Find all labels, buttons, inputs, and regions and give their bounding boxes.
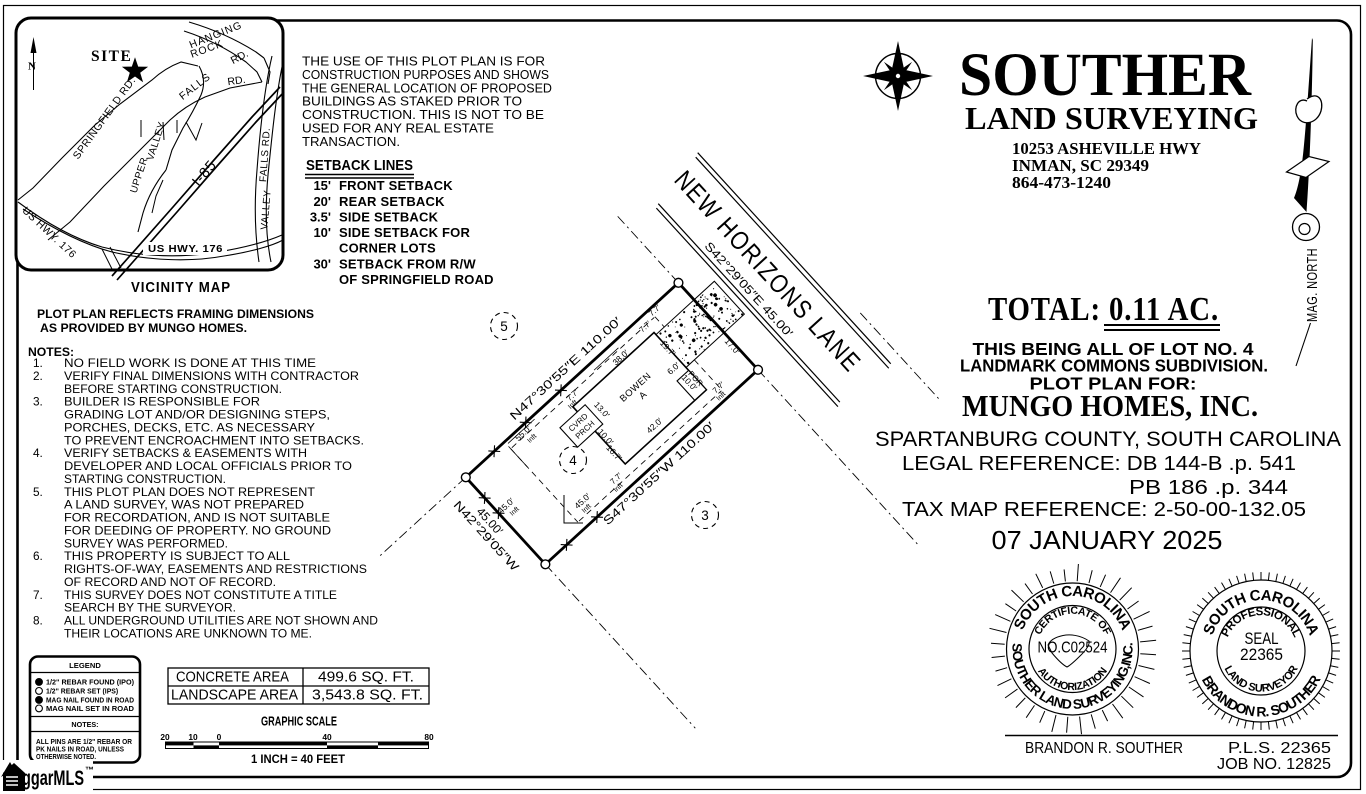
svg-text:JOB NO. 12825: JOB NO. 12825 <box>1217 756 1331 773</box>
svg-text:CORNER LOTS: CORNER LOTS <box>339 241 436 256</box>
svg-text:MAG. NORTH: MAG. NORTH <box>1305 248 1321 322</box>
svg-text:3.5': 3.5' <box>310 210 331 225</box>
svg-text:GRAPHIC SCALE: GRAPHIC SCALE <box>261 715 337 729</box>
svg-text:1/2" REBAR FOUND (IPO): 1/2" REBAR FOUND (IPO) <box>46 680 134 687</box>
svg-text:SIDE SETBACK FOR: SIDE SETBACK FOR <box>339 225 470 240</box>
svg-text:1/2" REBAR SET (IPS): 1/2" REBAR SET (IPS) <box>46 689 118 696</box>
svg-text:OTHERWISE NOTED.: OTHERWISE NOTED. <box>36 754 96 761</box>
svg-text:MAG NAIL FOUND IN ROAD: MAG NAIL FOUND IN ROAD <box>46 698 134 705</box>
svg-text:30': 30' <box>313 257 331 272</box>
svg-text:LEGEND: LEGEND <box>69 661 101 670</box>
svg-text:SOUTHER: SOUTHER <box>959 42 1252 109</box>
svg-text:N: N <box>28 61 36 73</box>
svg-text:5.: 5. <box>33 485 43 499</box>
svg-text:AS PROVIDED BY MUNGO HOMES: AS PROVIDED BY MUNGO HOMES. <box>40 321 247 335</box>
svg-text:499.6 SQ. FT.: 499.6 SQ. FT. <box>318 669 414 686</box>
svg-text:ALL PINS ARE 1/2" REBAR O: ALL PINS ARE 1/2" REBAR OR <box>36 739 132 746</box>
svg-text:10: 10 <box>188 732 198 742</box>
svg-text:ggarMLS: ggarMLS <box>22 767 84 790</box>
svg-text:SITE: SITE <box>91 48 132 65</box>
svg-text:3: 3 <box>701 508 709 523</box>
svg-text:™: ™ <box>85 765 94 775</box>
svg-text:864-473-1240: 864-473-1240 <box>1012 173 1111 192</box>
svg-text:10': 10' <box>313 225 331 240</box>
svg-text:0: 0 <box>217 732 222 742</box>
svg-text:20': 20' <box>313 194 331 209</box>
svg-text:LANDMARK COMMONS SUBDIVISION: LANDMARK COMMONS SUBDIVISION. <box>960 356 1268 376</box>
svg-text:3.: 3. <box>33 395 43 409</box>
svg-text:P.L.S. 22365: P.L.S. 22365 <box>1228 740 1331 757</box>
svg-text:MAG NAIL SET IN ROAD: MAG NAIL SET IN ROAD <box>46 706 134 713</box>
svg-text:7.: 7. <box>33 588 43 602</box>
svg-text:NOTES:: NOTES: <box>71 720 98 729</box>
svg-text:4.: 4. <box>33 446 43 460</box>
svg-text:SIDE SETBACK: SIDE SETBACK <box>339 210 439 225</box>
svg-text:22365: 22365 <box>1240 645 1283 664</box>
svg-text:MUNGO HOMES, INC.: MUNGO HOMES, INC. <box>962 388 1258 423</box>
svg-text:6.: 6. <box>33 549 43 563</box>
svg-text:PK NAILS IN ROAD, UNLESS: PK NAILS IN ROAD, UNLESS <box>36 747 124 754</box>
svg-text:LANDSCAPE AREA: LANDSCAPE AREA <box>171 687 299 704</box>
svg-text:CONCRETE AREA: CONCRETE AREA <box>176 669 290 686</box>
svg-text:THEIR LOCATIONS ARE UNKNOWN: THEIR LOCATIONS ARE UNKNOWN TO ME. <box>64 626 312 640</box>
svg-text:VICINITY MAP: VICINITY MAP <box>131 280 231 296</box>
svg-text:40: 40 <box>322 732 332 742</box>
svg-text:80: 80 <box>424 732 434 742</box>
svg-text:REAR SETBACK: REAR SETBACK <box>339 194 445 209</box>
svg-text:NO.C02524: NO.C02524 <box>1038 640 1108 657</box>
svg-text:2.: 2. <box>33 369 43 383</box>
svg-text:3,543.8 SQ. FT.: 3,543.8 SQ. FT. <box>312 687 423 704</box>
svg-text:OF SPRINGFIELD ROAD: OF SPRINGFIELD ROAD <box>339 272 494 287</box>
svg-text:US HWY. 176: US HWY. 176 <box>148 243 223 255</box>
svg-text:LAND SURVEYING: LAND SURVEYING <box>965 100 1258 136</box>
svg-text:SPARTANBURG COUNTY, SOUTH C: SPARTANBURG COUNTY, SOUTH CAROLINA <box>875 428 1341 451</box>
svg-text:SETBACK FROM R/W: SETBACK FROM R/W <box>339 257 476 272</box>
svg-text:PLOT PLAN REFLECTS FRAMING: PLOT PLAN REFLECTS FRAMING DIMENSIONS <box>37 307 314 321</box>
svg-text:BRANDON R. SOUTHER: BRANDON R. SOUTHER <box>1025 740 1183 757</box>
svg-text:20: 20 <box>160 732 170 742</box>
svg-text:15': 15' <box>313 178 331 193</box>
svg-text:TAX MAP REFERENCE: 2-50-00-: TAX MAP REFERENCE: 2-50-00-132.05 <box>902 499 1306 521</box>
svg-text:TOTAL: 0.11 AC.: TOTAL: 0.11 AC. <box>988 291 1219 328</box>
svg-text:TRANSACTION.: TRANSACTION. <box>302 134 400 149</box>
svg-text:1 INCH = 40 FEET: 1 INCH = 40 FEET <box>251 752 346 766</box>
svg-text:FRONT SETBACK: FRONT SETBACK <box>339 178 453 193</box>
svg-text:5: 5 <box>500 319 508 334</box>
svg-text:LEGAL REFERENCE: DB 144-B: LEGAL REFERENCE: DB 144-B .p. 541 <box>902 453 1296 475</box>
svg-text:SETBACK LINES: SETBACK LINES <box>306 157 413 174</box>
svg-text:8.: 8. <box>33 614 43 628</box>
svg-text:RD.: RD. <box>227 74 247 88</box>
svg-text:PB 186 .p. 344: PB 186 .p. 344 <box>1129 477 1288 499</box>
svg-text:4: 4 <box>569 453 577 468</box>
svg-text:07 JANUARY 2025: 07 JANUARY 2025 <box>992 525 1223 555</box>
